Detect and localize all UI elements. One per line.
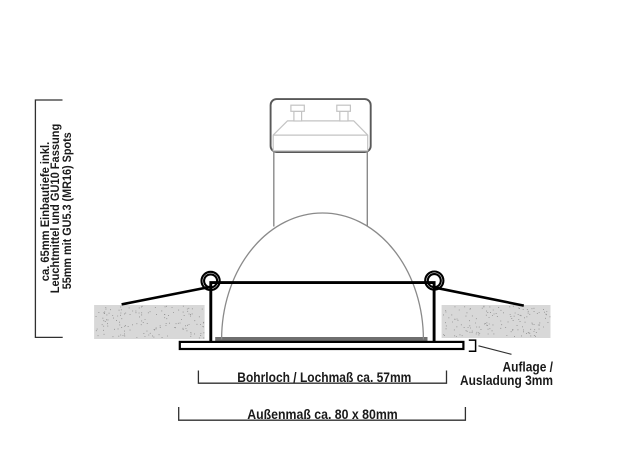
svg-text:Außenmaß ca. 80 x 80mm: Außenmaß ca. 80 x 80mm: [247, 406, 398, 422]
svg-text:55mm mit GU5.3 (MR16) Spots: 55mm mit GU5.3 (MR16) Spots: [61, 132, 74, 289]
svg-text:Ausladung 3mm: Ausladung 3mm: [460, 372, 553, 388]
svg-text:Bohrloch / Lochmaß ca. 57mm: Bohrloch / Lochmaß ca. 57mm: [237, 369, 411, 385]
